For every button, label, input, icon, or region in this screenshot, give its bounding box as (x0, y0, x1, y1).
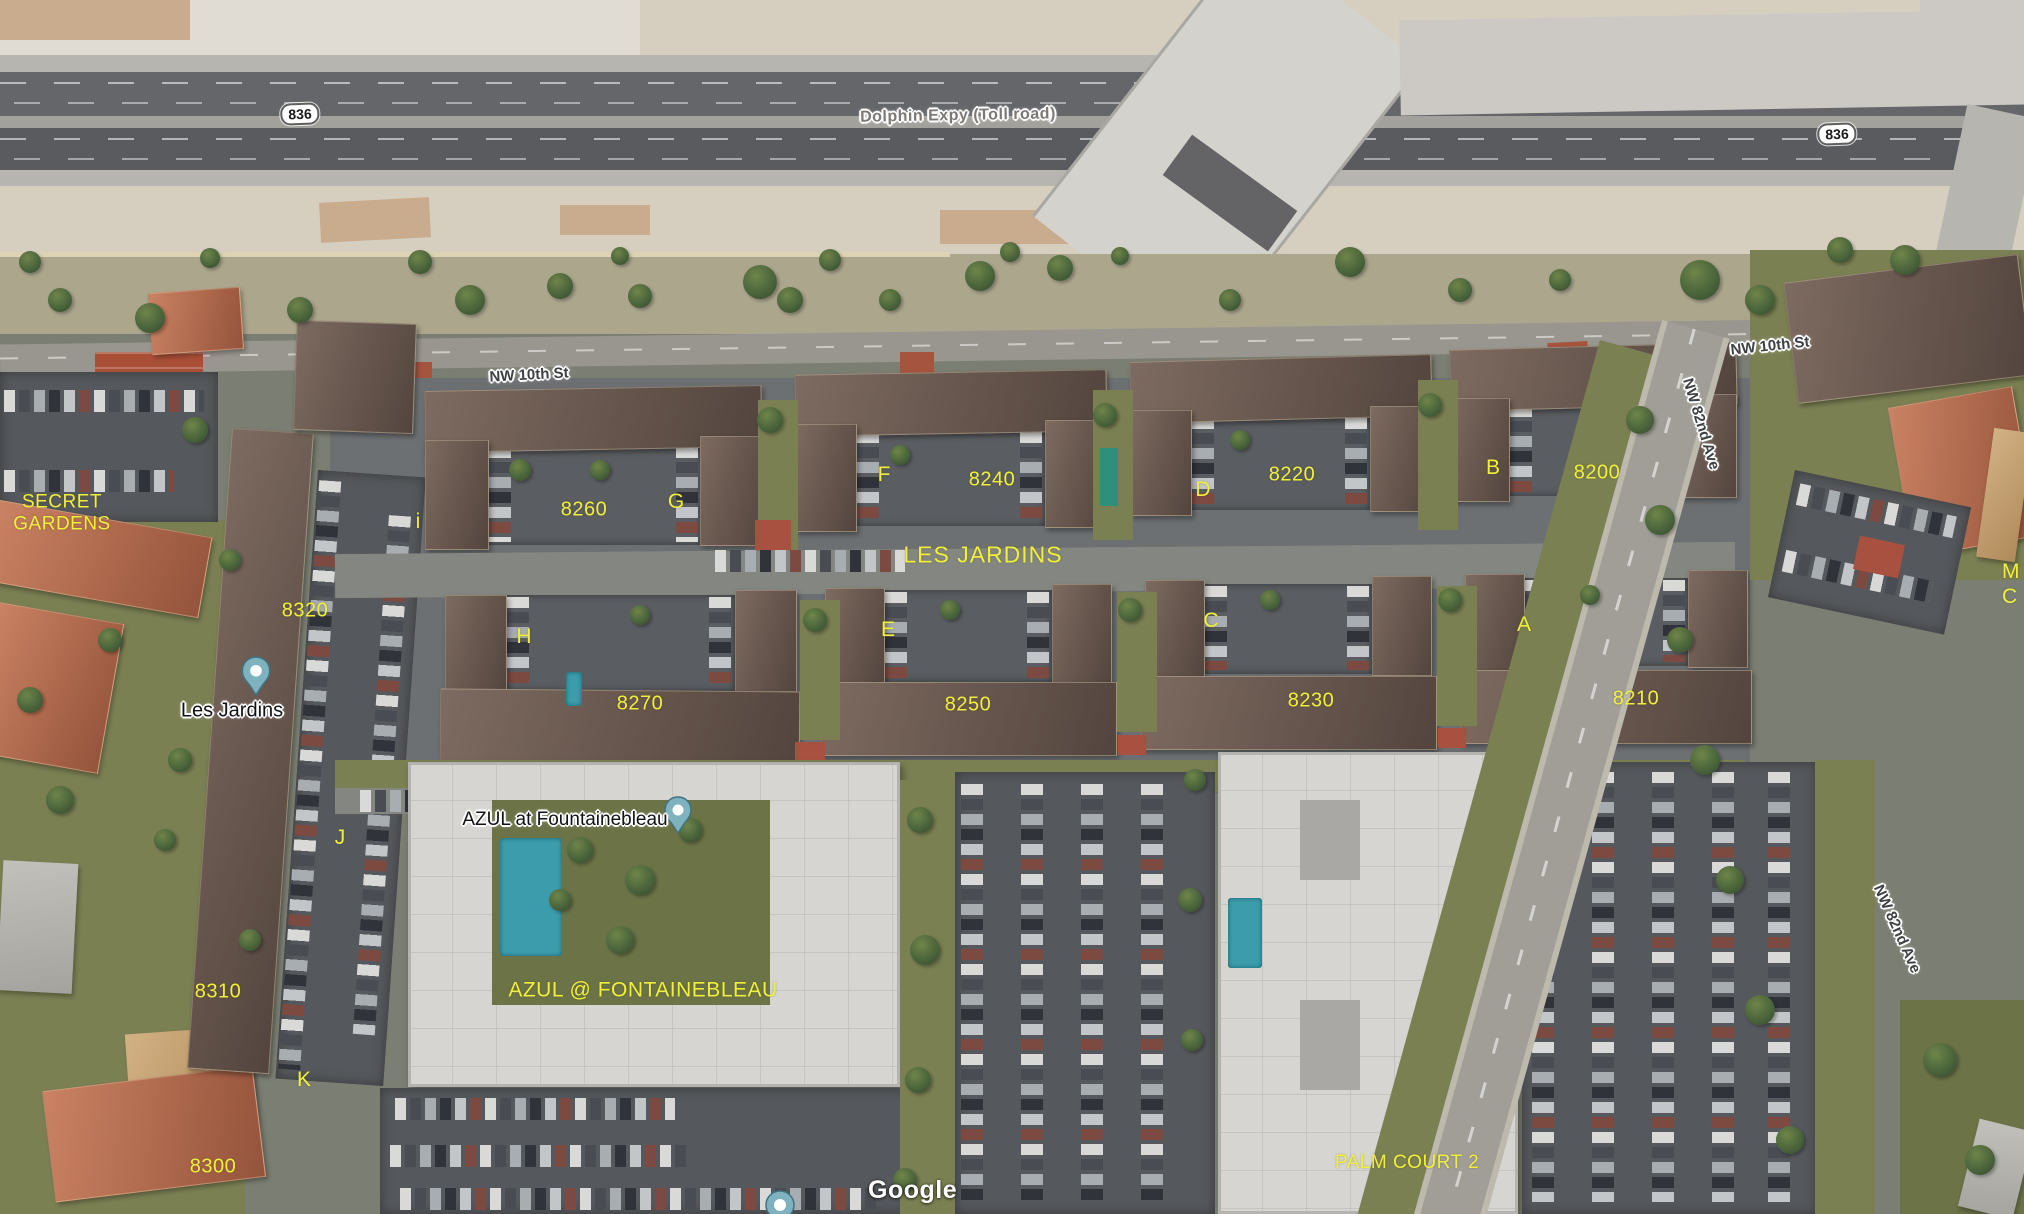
marker-label-azul[interactable]: AZUL at Fountainebleau (462, 809, 667, 831)
tree (1181, 1029, 1203, 1051)
tree (1219, 289, 1241, 311)
address-label: 8220 (1269, 464, 1316, 487)
tree (1716, 866, 1744, 894)
building-letter: H (516, 625, 531, 649)
tree (1118, 598, 1142, 622)
label-les-jardins: LES JARDINS (903, 542, 1062, 569)
tree (905, 1067, 931, 1093)
tree (940, 600, 960, 620)
address-label: 8230 (1288, 690, 1335, 713)
tree (1827, 237, 1853, 263)
tree (1549, 269, 1571, 291)
tree (606, 926, 634, 954)
les-jardins-pin[interactable] (241, 656, 271, 696)
tree (547, 273, 573, 299)
tree (611, 247, 629, 265)
tree (890, 445, 910, 465)
tree (1000, 242, 1020, 262)
tree (287, 297, 313, 323)
tree (1230, 430, 1250, 450)
tree (1111, 247, 1129, 265)
address-label: 8300 (190, 1156, 237, 1179)
tree (1184, 769, 1206, 791)
map-pin-icon (762, 1188, 798, 1214)
tree (200, 248, 220, 268)
tree (567, 837, 593, 863)
bottom-edge-pin[interactable] (762, 1188, 798, 1214)
tree (509, 459, 531, 481)
building-letter: G (668, 490, 684, 514)
tree (630, 605, 650, 625)
tree (1667, 627, 1693, 653)
label-palm-court: PALM COURT 2 (1335, 1152, 1479, 1174)
building-letter: B (1486, 456, 1500, 480)
tree (1260, 590, 1280, 610)
address-label: 8260 (561, 499, 608, 522)
route-shield-836-right: 836 (1817, 122, 1857, 145)
tree (777, 287, 803, 313)
tree (743, 265, 777, 299)
tree (1890, 245, 1920, 275)
tree (1626, 406, 1654, 434)
tree (455, 285, 485, 315)
tree (590, 460, 610, 480)
tree (1965, 1145, 1995, 1175)
map-pin-icon (241, 656, 271, 696)
tree (1448, 278, 1472, 302)
address-label: 8270 (617, 693, 664, 716)
marker-label-les-jardins[interactable]: Les Jardins (181, 700, 283, 723)
address-label: 8310 (195, 981, 242, 1004)
tree (17, 687, 43, 713)
tree (1745, 285, 1775, 315)
tree (907, 807, 933, 833)
tree (1438, 588, 1462, 612)
building-letter: A (1517, 613, 1531, 637)
tree (1776, 1126, 1804, 1154)
label-secret-gardens: SECRET GARDENS (13, 492, 110, 537)
address-label: 8240 (969, 469, 1016, 492)
google-watermark: Google (868, 1176, 957, 1205)
tree (408, 250, 432, 274)
building-letter: D (1195, 478, 1210, 502)
tree (549, 889, 571, 911)
tree (1923, 1043, 1957, 1077)
tree (98, 628, 122, 652)
building-letter: E (881, 618, 895, 642)
route-shield-836-left: 836 (280, 102, 320, 125)
tree (239, 929, 261, 951)
address-label: 8210 (1613, 688, 1660, 711)
label-azul: AZUL @ FONTAINEBLEAU (508, 979, 777, 1004)
address-label: 8320 (282, 600, 329, 623)
tree (803, 608, 827, 632)
address-label: 8200 (1574, 462, 1621, 485)
tree (154, 829, 176, 851)
tree (219, 549, 241, 571)
satellite-map[interactable]: Dolphin Expy (Toll road) NW 10th St NW 1… (0, 0, 2024, 1214)
tree (1645, 505, 1675, 535)
tree (965, 261, 995, 291)
building-letter: J (335, 826, 346, 850)
building-letter: i (416, 510, 421, 534)
building-letter: K (297, 1068, 311, 1092)
tree (182, 417, 208, 443)
tree (135, 303, 165, 333)
tree (1690, 745, 1720, 775)
tree (1178, 888, 1202, 912)
tree (1093, 403, 1117, 427)
tree (628, 284, 652, 308)
tree (625, 865, 655, 895)
building-letter: C (1203, 609, 1218, 633)
tree (1745, 995, 1775, 1025)
tree (1418, 393, 1442, 417)
tree (819, 249, 841, 271)
tree (910, 935, 940, 965)
building-letter: F (878, 463, 891, 487)
tree (19, 251, 41, 273)
address-label: 8250 (945, 694, 992, 717)
tree (1680, 260, 1720, 300)
tree (1335, 247, 1365, 277)
tree (879, 289, 901, 311)
tree (1047, 255, 1073, 281)
tree (1580, 585, 1600, 605)
tree (46, 786, 74, 814)
road-label-dolphin-expy: Dolphin Expy (Toll road) (860, 105, 1056, 126)
tree (757, 407, 783, 433)
label-edge-partial: M C (2002, 560, 2020, 610)
tree (168, 748, 192, 772)
map-pin-icon (664, 796, 692, 834)
azul-pin[interactable] (664, 796, 692, 834)
tree (48, 288, 72, 312)
